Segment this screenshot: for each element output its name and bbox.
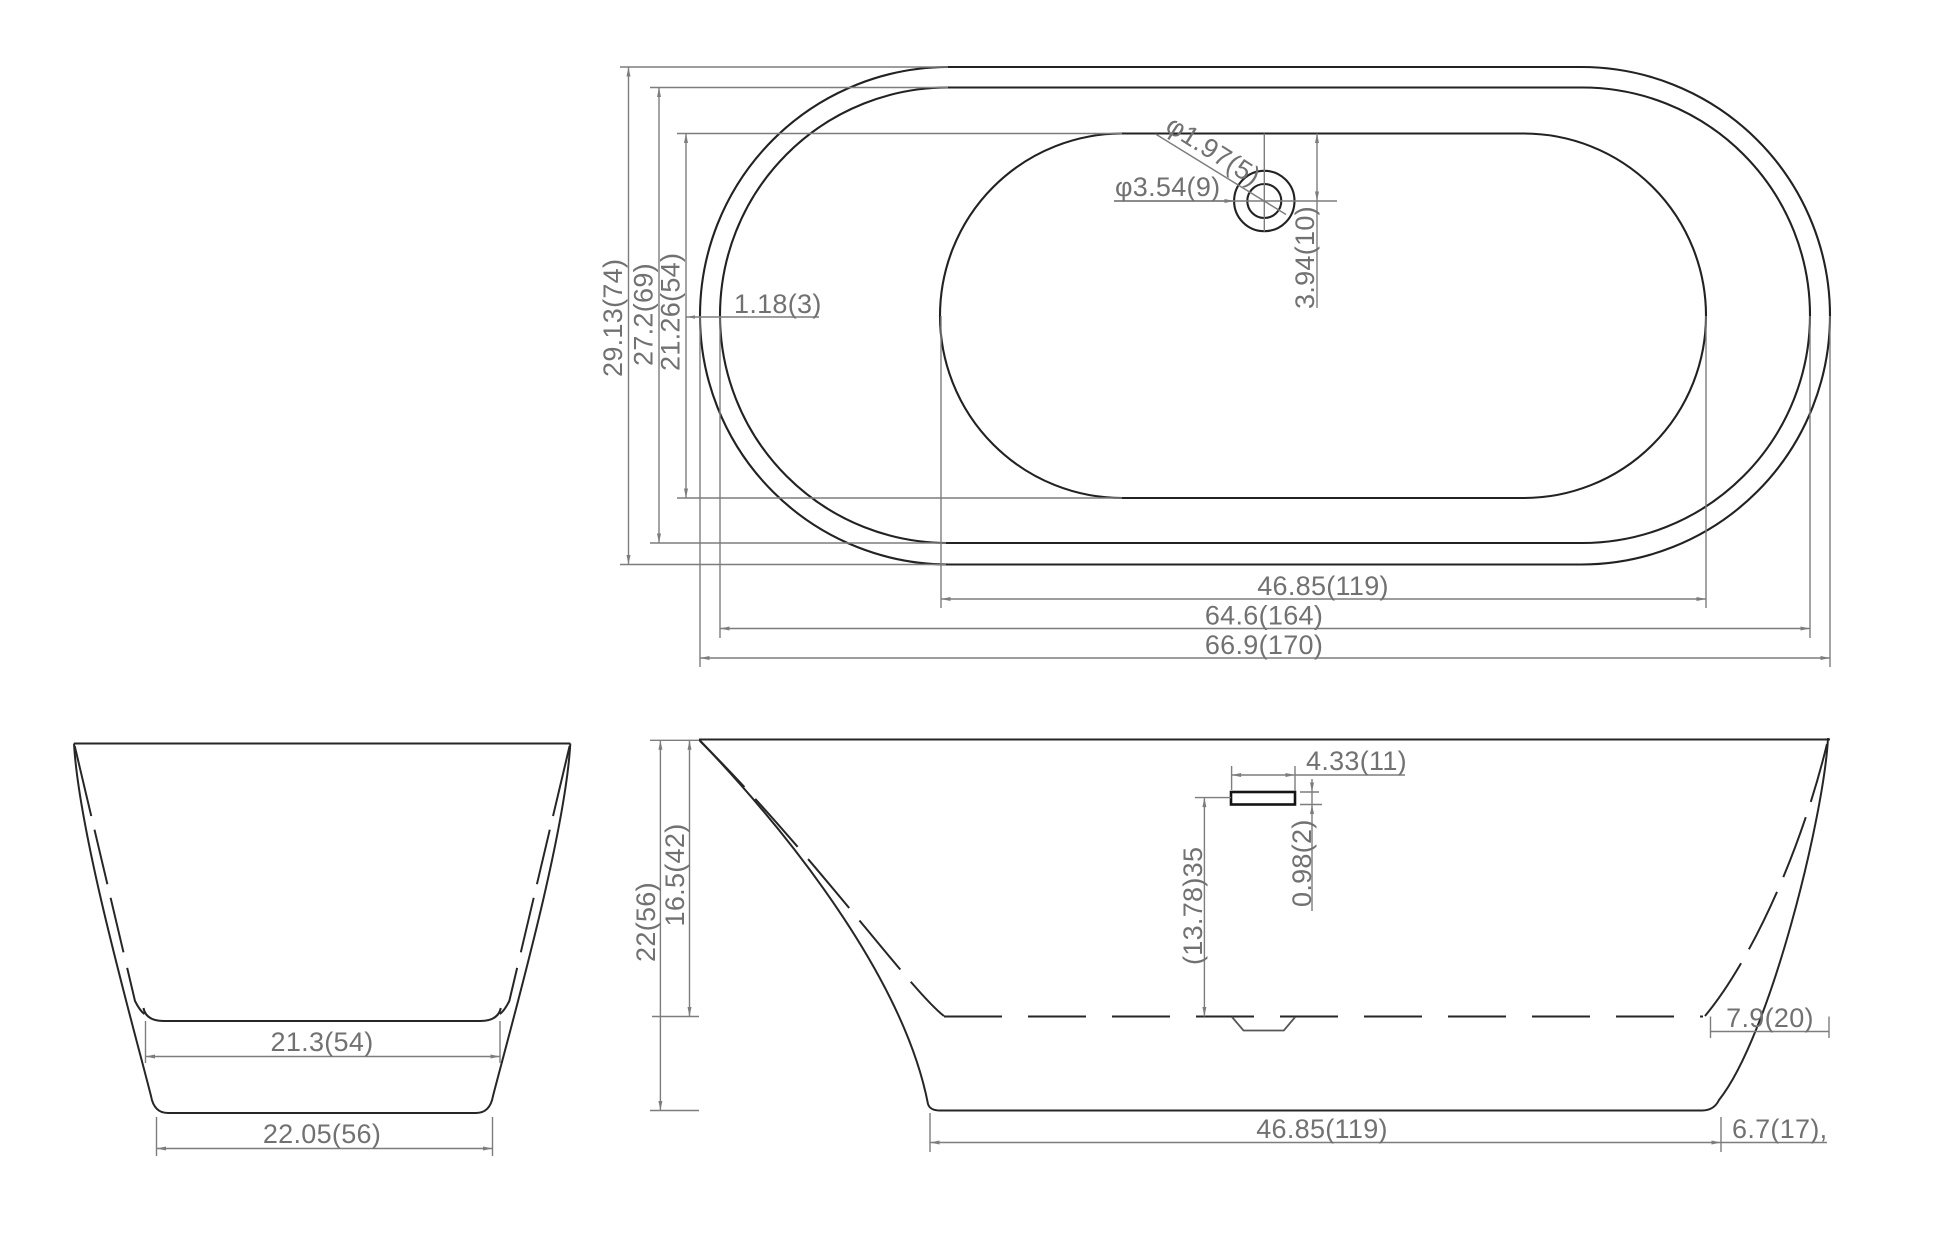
svg-text:46.85(119): 46.85(119) — [1257, 571, 1389, 601]
svg-text:6.7(17),: 6.7(17), — [1732, 1114, 1827, 1144]
svg-text:22.05(56): 22.05(56) — [263, 1119, 381, 1149]
svg-text:22(56): 22(56) — [631, 882, 661, 962]
svg-text:66.9(170): 66.9(170) — [1205, 630, 1323, 660]
svg-text:1.18(3): 1.18(3) — [734, 289, 822, 319]
svg-text:4.33(11): 4.33(11) — [1306, 746, 1407, 776]
svg-text:27.2(69): 27.2(69) — [629, 263, 659, 366]
svg-text:7.9(20): 7.9(20) — [1726, 1003, 1814, 1033]
svg-text:16.5(42): 16.5(42) — [660, 824, 690, 927]
svg-text:21.26(54): 21.26(54) — [656, 253, 686, 371]
svg-text:φ3.54(9): φ3.54(9) — [1115, 172, 1220, 202]
svg-text:29.13(74): 29.13(74) — [598, 259, 628, 377]
svg-text:3.94(10): 3.94(10) — [1290, 206, 1320, 309]
svg-text:46.85(119): 46.85(119) — [1256, 1114, 1388, 1144]
svg-text:0.98(2): 0.98(2) — [1287, 819, 1317, 907]
svg-text:64.6(164): 64.6(164) — [1205, 601, 1323, 631]
svg-text:21.3(54): 21.3(54) — [271, 1027, 374, 1057]
svg-text:(13.78)35: (13.78)35 — [1178, 847, 1208, 965]
